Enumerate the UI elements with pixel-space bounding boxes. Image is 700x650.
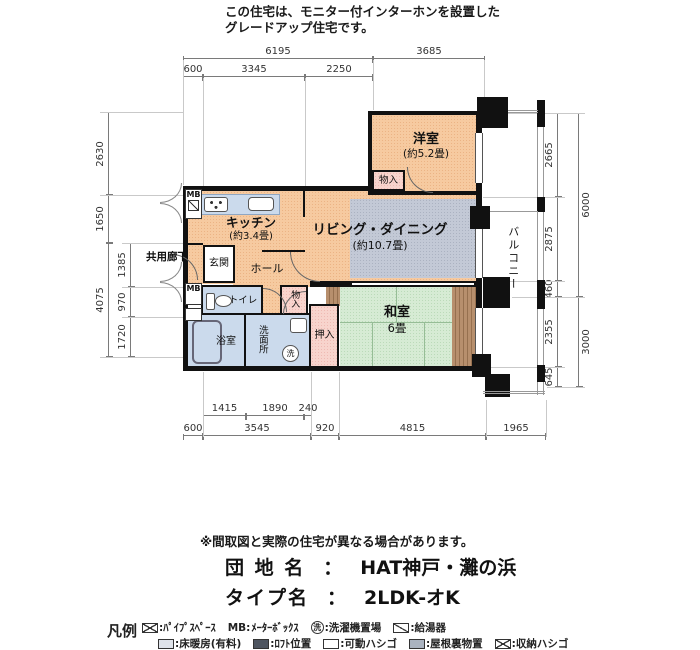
extension-line xyxy=(546,400,547,437)
dim-right-645: 645 xyxy=(557,367,558,387)
entrance-label: 玄関 xyxy=(205,258,233,271)
laundry-circle-icon: 洗 xyxy=(311,621,324,634)
bath-label: 浴室 xyxy=(209,336,243,349)
window xyxy=(475,133,483,183)
danchi-row: 団 地 名 ： HAT神戸・灘の浜 xyxy=(225,553,516,580)
legend-laundry: 洗 :洗濯機置場 xyxy=(311,620,382,635)
storage-ladder-icon xyxy=(495,639,511,649)
pipe-space-icon xyxy=(142,623,158,633)
extension-line xyxy=(203,78,204,188)
extension-line xyxy=(483,367,565,368)
dim-left-2630: 2630 xyxy=(108,112,109,195)
mb-box-upper: MB xyxy=(185,189,202,219)
pillar xyxy=(477,97,508,128)
wall-segment xyxy=(183,186,373,191)
legend-pipe-space: :ﾊﾟｲﾌﾟｽﾍﾟｰｽ xyxy=(142,620,216,635)
toilet-label: トイレ xyxy=(225,295,261,307)
balcony-rail-post xyxy=(537,197,545,212)
dim-top-2250: 2250 xyxy=(305,76,373,77)
dim-right-2875: 2875 xyxy=(557,197,558,281)
water-heater-icon xyxy=(393,623,409,633)
corridor-door-arc xyxy=(160,203,182,223)
hall-label: ホール xyxy=(240,262,294,276)
dim-bottom-1965: 1965 xyxy=(486,435,546,436)
kitchen-partition xyxy=(303,191,305,217)
mb-label: MB xyxy=(186,284,201,293)
monoire-upper-label: 物入 xyxy=(372,175,405,187)
dim-left-1720: 1720 xyxy=(130,317,131,357)
extension-line xyxy=(305,78,306,188)
type-label: タイプ名 xyxy=(225,583,309,610)
dim-bottom-1890: 1890 xyxy=(246,415,304,416)
dim-left-1385: 1385 xyxy=(130,243,131,287)
washroom-label: 洗面所 xyxy=(256,325,268,354)
extension-line xyxy=(483,197,565,198)
balcony-rail-post xyxy=(537,280,545,309)
loft-icon xyxy=(253,639,269,649)
extension-line xyxy=(203,372,204,437)
balcony-rail-post xyxy=(537,100,545,127)
toilet-tank-icon xyxy=(206,293,215,310)
extension-line xyxy=(484,60,485,97)
water-heater-icon xyxy=(188,200,199,211)
extension-line xyxy=(339,372,340,437)
dim-bottom-920: 920 xyxy=(311,435,339,436)
type-colon: ： xyxy=(327,583,346,610)
pipe-space-icon xyxy=(185,308,202,321)
type-row: タイプ名 ： 2LDK-オK xyxy=(225,583,460,610)
room-kitchen-label: キッチン (約3.4畳) xyxy=(210,215,292,243)
room-washitsu-label: 和室 6畳 xyxy=(355,305,439,336)
balcony-divider xyxy=(483,391,545,394)
corridor-label: 共用廊下 xyxy=(146,251,188,264)
extension-line xyxy=(122,317,190,318)
dim-top-6195: 6195 xyxy=(183,58,373,59)
header-line1: この住宅は、モニター付インターホンを設置した xyxy=(225,4,500,20)
extension-line xyxy=(100,112,183,113)
legend-loft: :ﾛﾌﾄ位置 xyxy=(253,636,311,650)
legend-meter-box: MB: ﾒｰﾀｰﾎﾞｯｸｽ xyxy=(228,620,299,635)
entrance-partition xyxy=(188,243,203,245)
mb-box-lower: MB xyxy=(185,283,202,305)
danchi-label: 団 地 名 xyxy=(225,553,305,580)
sliding-door xyxy=(352,282,474,286)
window xyxy=(475,308,483,355)
washer-circle-icon: 洗 xyxy=(282,345,299,362)
dim-right-3000: 3000 xyxy=(578,297,579,387)
dim-bottom-4815: 4815 xyxy=(339,435,486,436)
dim-top-3345: 3345 xyxy=(203,76,305,77)
balcony-divider xyxy=(490,211,538,212)
legend-row2: :床暖房(有料) :ﾛﾌﾄ位置 :可動ハシゴ :屋根裏物置 :収納ハシゴ xyxy=(158,636,568,650)
room-living-label: リビング・ダイニング (約10.7畳) xyxy=(300,222,460,253)
balcony-rail xyxy=(537,100,544,395)
legend-title: 凡例 xyxy=(107,620,137,641)
dim-right-2665: 2665 xyxy=(557,113,558,197)
attic-storage-icon xyxy=(409,639,425,649)
legend-storage-ladder: :収納ハシゴ xyxy=(495,636,569,650)
dim-left-1650: 1650 xyxy=(108,195,109,243)
dim-left-970: 970 xyxy=(130,287,131,317)
extension-line xyxy=(512,297,585,298)
dim-right-2355: 2355 xyxy=(557,297,558,367)
pillar xyxy=(470,206,490,229)
movable-ladder-icon xyxy=(323,639,339,649)
extension-line xyxy=(373,60,374,110)
washer-glyph: 洗 xyxy=(287,349,295,358)
sink-icon xyxy=(248,197,274,211)
legend-movable-ladder: :可動ハシゴ xyxy=(323,636,397,650)
dim-bottom-1415: 1415 xyxy=(203,415,246,416)
type-value: 2LDK-オK xyxy=(364,583,460,610)
danchi-value: HAT神戸・灘の浜 xyxy=(360,553,516,580)
extension-line xyxy=(100,357,186,358)
monoire-lower-label: 物入 xyxy=(288,290,299,308)
header-line2: グレードアップ住宅です。 xyxy=(225,20,500,36)
balcony-label: バルコニー xyxy=(506,226,520,291)
legend-row1: :ﾊﾟｲﾌﾟｽﾍﾟｰｽ MB: ﾒｰﾀｰﾎﾞｯｸｽ 洗 :洗濯機置場 :給湯器 xyxy=(142,620,446,635)
extension-line xyxy=(183,60,184,185)
dim-bottom-600: 600 xyxy=(183,435,203,436)
legend-water-heater: :給湯器 xyxy=(393,620,446,635)
floor-heating-icon xyxy=(158,639,174,649)
mb-label: MB xyxy=(186,190,201,199)
washbasin-icon xyxy=(290,318,307,333)
disclaimer-note: ※間取図と実際の住宅が異なる場合があります。 xyxy=(200,531,473,550)
dim-right-460: 460 xyxy=(557,281,558,297)
oshiire-label: 押入 xyxy=(312,330,337,343)
balcony-rail-post xyxy=(537,365,545,382)
dim-bottom-3545: 3545 xyxy=(203,435,311,436)
legend-attic-storage: :屋根裏物置 xyxy=(409,636,483,650)
extension-line xyxy=(486,400,487,437)
extension-line xyxy=(311,372,312,437)
header-note: この住宅は、モニター付インターホンを設置した グレードアップ住宅です。 xyxy=(225,4,500,36)
floorplan-page: この住宅は、モニター付インターホンを設置した グレードアップ住宅です。 6195… xyxy=(0,0,700,650)
balcony-divider xyxy=(508,110,538,113)
danchi-colon: ： xyxy=(323,553,342,580)
dim-left-4075: 4075 xyxy=(108,243,109,357)
corridor-door-arc xyxy=(160,183,182,203)
stove-icon xyxy=(204,197,228,212)
dim-right-6000: 6000 xyxy=(578,113,579,297)
legend-floor-heating: :床暖房(有料) xyxy=(158,636,241,650)
dim-top-600: 600 xyxy=(183,76,203,77)
dim-top-3685: 3685 xyxy=(373,58,485,59)
window xyxy=(475,228,483,278)
room-yoshitsu-label: 洋室 (約5.2畳) xyxy=(378,132,474,161)
extension-line xyxy=(547,387,585,388)
corridor-door-arc xyxy=(160,282,182,302)
